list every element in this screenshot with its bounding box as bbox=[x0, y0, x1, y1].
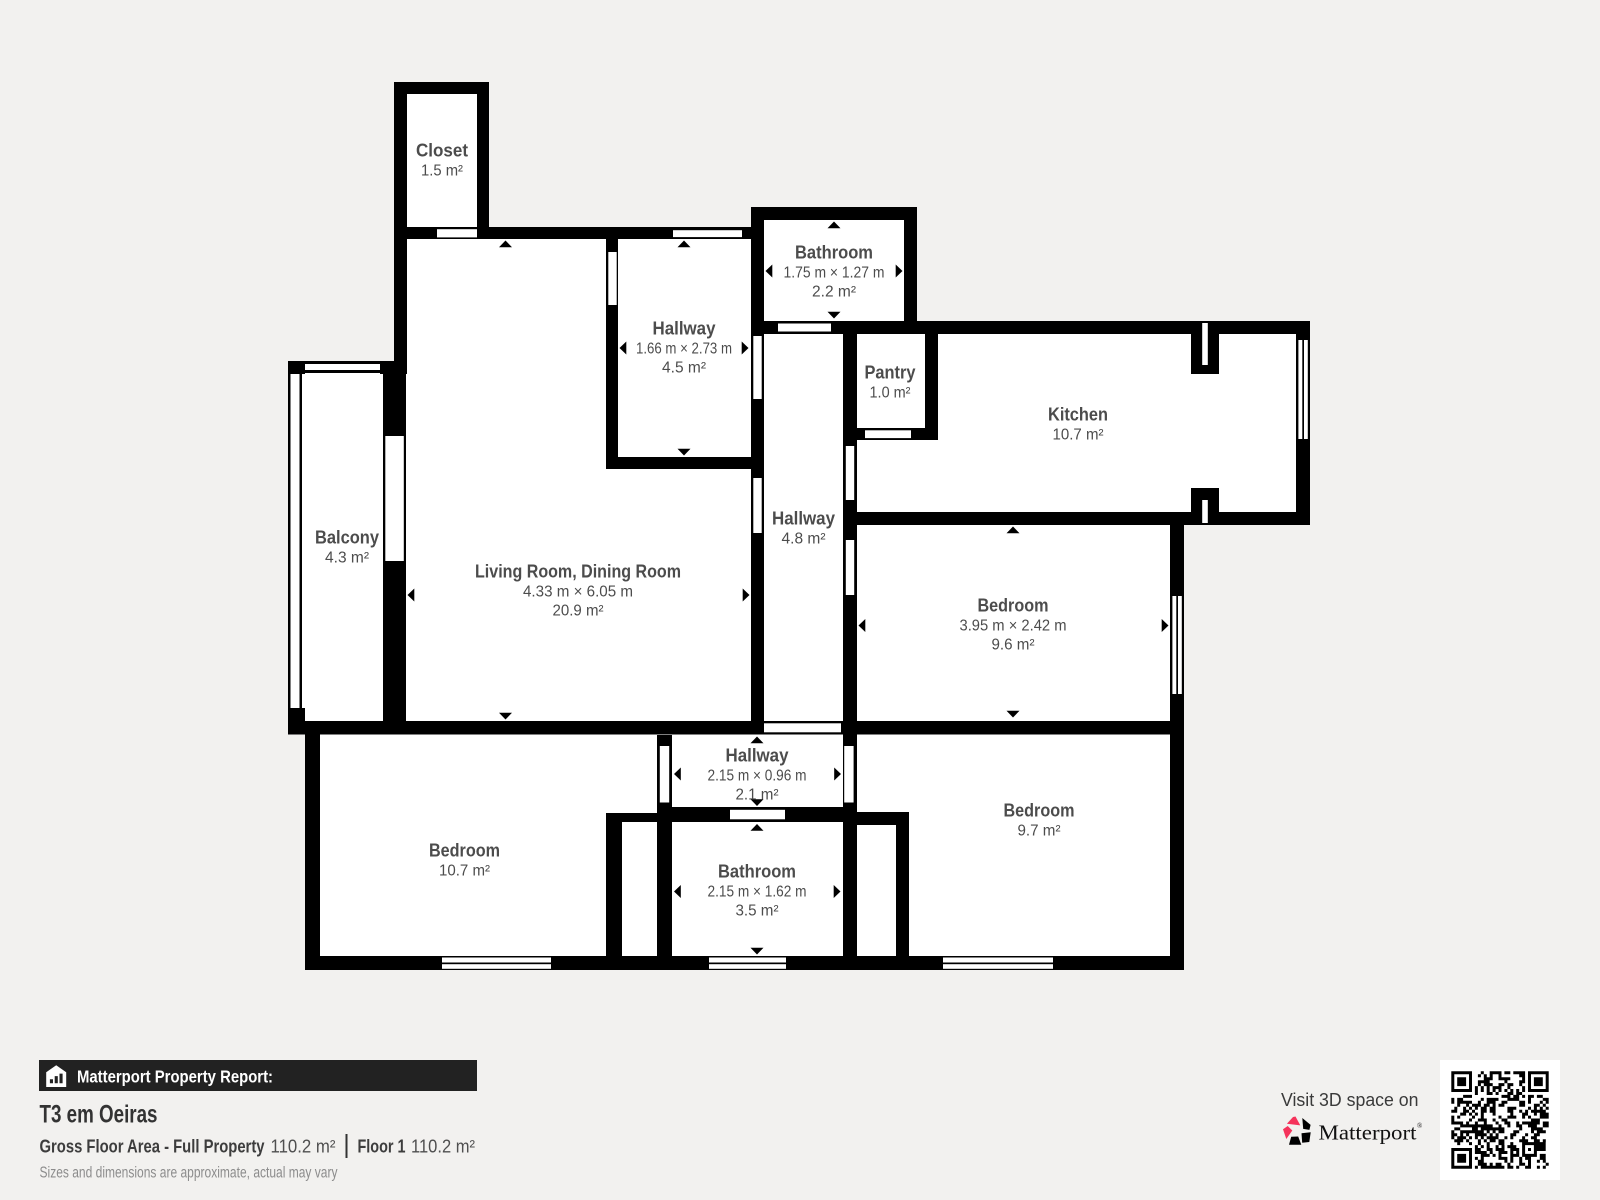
svg-text:Bedroom: Bedroom bbox=[978, 596, 1049, 616]
svg-text:4.8 m²: 4.8 m² bbox=[782, 531, 826, 548]
svg-text:Hallway: Hallway bbox=[726, 746, 789, 766]
svg-text:®: ® bbox=[1417, 1122, 1423, 1130]
svg-text:Bedroom: Bedroom bbox=[429, 841, 500, 861]
svg-text:9.7 m²: 9.7 m² bbox=[1018, 823, 1061, 840]
svg-text:3.5 m²: 3.5 m² bbox=[736, 903, 779, 920]
svg-text:1.5 m²: 1.5 m² bbox=[421, 163, 463, 180]
svg-text:Closet: Closet bbox=[416, 141, 468, 161]
svg-text:2.15 m × 1.62 m: 2.15 m × 1.62 m bbox=[708, 884, 807, 901]
svg-text:Kitchen: Kitchen bbox=[1048, 405, 1108, 425]
svg-text:110.2 m²: 110.2 m² bbox=[271, 1137, 336, 1157]
svg-text:3.95 m × 2.42 m: 3.95 m × 2.42 m bbox=[960, 618, 1067, 635]
svg-text:Balcony: Balcony bbox=[315, 528, 379, 548]
svg-text:Hallway: Hallway bbox=[772, 509, 835, 529]
svg-text:9.6 m²: 9.6 m² bbox=[992, 637, 1035, 654]
svg-text:110.2 m²: 110.2 m² bbox=[411, 1137, 475, 1157]
svg-text:Sizes and dimensions are appro: Sizes and dimensions are approximate, ac… bbox=[40, 1165, 338, 1182]
svg-text:10.7 m²: 10.7 m² bbox=[1053, 427, 1104, 444]
svg-text:Pantry: Pantry bbox=[865, 363, 916, 383]
svg-text:Gross Floor Area - Full Proper: Gross Floor Area - Full Property bbox=[40, 1136, 266, 1157]
svg-text:2.15 m × 0.96 m: 2.15 m × 0.96 m bbox=[708, 768, 807, 785]
svg-text:2.1 m²: 2.1 m² bbox=[736, 787, 779, 804]
svg-text:1.0 m²: 1.0 m² bbox=[870, 385, 911, 402]
svg-text:Matterport Property Report:: Matterport Property Report: bbox=[77, 1067, 273, 1087]
svg-text:10.7 m²: 10.7 m² bbox=[439, 863, 490, 880]
svg-text:2.2 m²: 2.2 m² bbox=[812, 284, 856, 301]
svg-text:Floor 1: Floor 1 bbox=[358, 1137, 406, 1157]
svg-text:Visit 3D space on: Visit 3D space on bbox=[1281, 1090, 1419, 1110]
svg-text:Living Room, Dining Room: Living Room, Dining Room bbox=[475, 562, 681, 582]
svg-text:1.66 m × 2.73 m: 1.66 m × 2.73 m bbox=[636, 341, 732, 358]
svg-text:4.3 m²: 4.3 m² bbox=[325, 550, 369, 567]
svg-text:T3 em Oeiras: T3 em Oeiras bbox=[40, 1101, 158, 1129]
svg-text:Matterport: Matterport bbox=[1319, 1121, 1417, 1145]
svg-text:1.75 m × 1.27 m: 1.75 m × 1.27 m bbox=[784, 265, 885, 282]
svg-text:4.5 m²: 4.5 m² bbox=[662, 360, 706, 377]
svg-text:Hallway: Hallway bbox=[653, 319, 716, 339]
svg-text:20.9 m²: 20.9 m² bbox=[553, 603, 604, 620]
svg-text:4.33 m × 6.05 m: 4.33 m × 6.05 m bbox=[523, 584, 633, 601]
svg-text:Bathroom: Bathroom bbox=[718, 862, 796, 882]
svg-text:Bathroom: Bathroom bbox=[795, 243, 873, 263]
svg-text:Bedroom: Bedroom bbox=[1004, 801, 1075, 821]
